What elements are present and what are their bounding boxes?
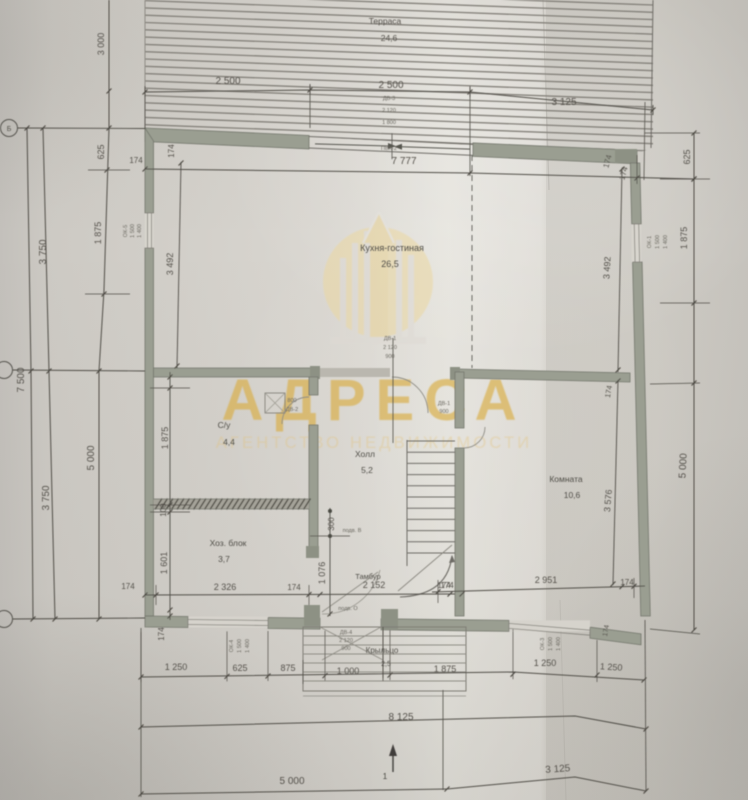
svg-text:5 000: 5 000 [677, 453, 689, 479]
svg-text:174: 174 [157, 627, 166, 641]
svg-text:174: 174 [440, 581, 454, 590]
svg-text:5 000: 5 000 [86, 445, 97, 470]
svg-text:Терраса: Терраса [369, 16, 402, 26]
svg-text:174: 174 [167, 144, 176, 158]
svg-text:ДВ-1: ДВ-1 [438, 401, 450, 407]
svg-text:8 125: 8 125 [388, 712, 413, 723]
svg-text:875: 875 [280, 663, 295, 673]
svg-text:ПВХ-2: ПВХ-2 [381, 146, 397, 152]
svg-text:Б: Б [7, 126, 12, 133]
svg-text:1 076: 1 076 [317, 562, 327, 585]
svg-text:3 576: 3 576 [602, 489, 614, 512]
svg-text:С/у: С/у [218, 420, 232, 430]
svg-text:ДВ-2: ДВ-2 [286, 407, 298, 413]
svg-text:625: 625 [232, 663, 247, 673]
svg-text:2 120: 2 120 [339, 638, 353, 644]
svg-text:174: 174 [129, 156, 143, 165]
svg-text:1 250: 1 250 [165, 662, 188, 672]
svg-text:3 492: 3 492 [165, 253, 175, 276]
svg-text:Комната: Комната [549, 474, 583, 484]
svg-text:подв. В: подв. В [343, 528, 362, 534]
svg-text:7 500: 7 500 [16, 367, 27, 392]
svg-text:174: 174 [620, 578, 634, 587]
svg-text:Тамбур: Тамбур [355, 572, 380, 581]
svg-text:ОК-1: ОК-1 [647, 236, 653, 248]
svg-text:1 500: 1 500 [655, 235, 661, 249]
svg-text:3 750: 3 750 [41, 485, 52, 510]
svg-text:10,6: 10,6 [564, 490, 581, 500]
svg-text:ДВ-3: ДВ-3 [383, 96, 395, 102]
svg-text:2 500: 2 500 [378, 80, 403, 91]
svg-text:1 500: 1 500 [237, 639, 243, 653]
svg-text:900: 900 [341, 646, 350, 652]
svg-text:Хоз. блок: Хоз. блок [210, 538, 247, 548]
svg-text:2 120: 2 120 [382, 108, 396, 114]
svg-text:1 800: 1 800 [382, 120, 396, 126]
svg-text:24,6: 24,6 [381, 33, 398, 43]
svg-text:2,5: 2,5 [381, 661, 391, 668]
svg-text:ДВ-1: ДВ-1 [384, 336, 396, 342]
svg-text:100: 100 [159, 503, 168, 517]
svg-text:3 492: 3 492 [601, 256, 612, 279]
svg-text:625: 625 [682, 149, 692, 164]
svg-text:3 125: 3 125 [551, 97, 576, 108]
svg-text:ОК-3: ОК-3 [540, 638, 546, 650]
svg-text:900: 900 [385, 354, 394, 360]
svg-text:3 000: 3 000 [96, 33, 106, 56]
svg-text:ОК-5: ОК-5 [123, 225, 129, 237]
svg-text:2 951: 2 951 [535, 575, 558, 585]
svg-text:1 400: 1 400 [245, 639, 251, 653]
svg-text:2 152: 2 152 [363, 580, 386, 590]
svg-text:800: 800 [287, 398, 296, 404]
svg-text:1 400: 1 400 [137, 224, 143, 238]
svg-text:625: 625 [96, 144, 106, 159]
svg-text:2 326: 2 326 [214, 582, 237, 592]
svg-text:Холл: Холл [355, 449, 375, 459]
svg-text:1 400: 1 400 [556, 637, 562, 651]
svg-text:ДВ-4: ДВ-4 [340, 630, 352, 636]
svg-text:3,7: 3,7 [218, 554, 230, 564]
svg-text:1 875: 1 875 [93, 222, 103, 245]
svg-text:26,5: 26,5 [381, 259, 399, 269]
svg-text:1 500: 1 500 [130, 224, 136, 238]
svg-text:2 120: 2 120 [383, 345, 397, 351]
svg-text:Кухня-гостиная: Кухня-гостиная [360, 243, 424, 253]
svg-text:4,4: 4,4 [223, 437, 235, 447]
svg-text:174: 174 [287, 583, 301, 592]
svg-text:5 000: 5 000 [279, 776, 304, 787]
svg-text:1 875: 1 875 [434, 664, 457, 674]
svg-text:1 250: 1 250 [534, 658, 557, 668]
svg-text:900: 900 [439, 409, 448, 415]
svg-text:1 601: 1 601 [159, 552, 169, 575]
svg-text:3 750: 3 750 [38, 239, 49, 264]
svg-text:1 400: 1 400 [663, 235, 669, 249]
svg-text:1 875: 1 875 [679, 227, 689, 250]
svg-text:300: 300 [327, 517, 336, 531]
svg-text:1 875: 1 875 [160, 427, 170, 450]
svg-text:174: 174 [121, 582, 135, 591]
svg-text:ОК-4: ОК-4 [229, 640, 235, 652]
svg-text:1 000: 1 000 [337, 666, 360, 676]
svg-text:Крыльцо: Крыльцо [366, 646, 399, 655]
svg-text:2 500: 2 500 [215, 76, 240, 87]
svg-text:1 250: 1 250 [600, 661, 623, 673]
svg-text:3 125: 3 125 [545, 763, 571, 776]
svg-text:5,2: 5,2 [361, 465, 373, 475]
svg-text:7 777: 7 777 [391, 156, 416, 167]
svg-text:1 500: 1 500 [548, 637, 554, 651]
svg-text:1: 1 [383, 772, 388, 781]
svg-text:подв. О: подв. О [338, 606, 358, 612]
